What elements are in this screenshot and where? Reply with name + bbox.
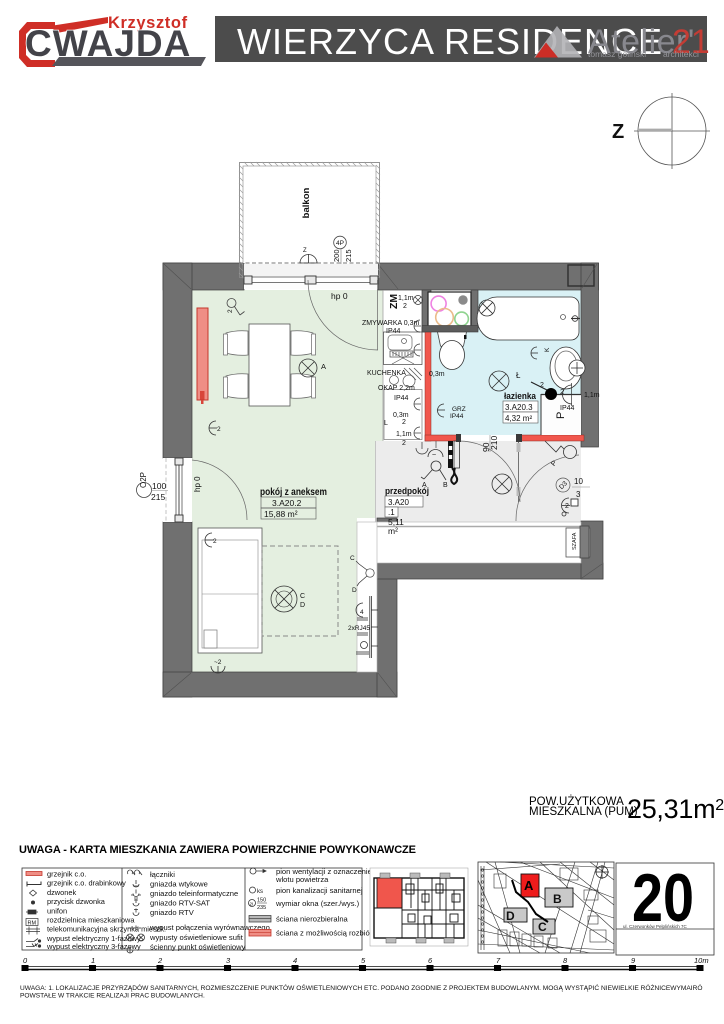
svg-text:hp 0: hp 0 bbox=[331, 291, 348, 301]
svg-text:3.A20: 3.A20 bbox=[388, 498, 409, 507]
svg-text:.1: .1 bbox=[388, 508, 395, 517]
svg-text:grzejnik c.o.: grzejnik c.o. bbox=[47, 870, 86, 879]
svg-text:4: 4 bbox=[293, 956, 297, 965]
svg-text:3: 3 bbox=[576, 490, 581, 499]
svg-text:GRZ: GRZ bbox=[452, 406, 466, 413]
svg-text:3: 3 bbox=[226, 956, 231, 965]
svg-text:telekomunikacyjna skrzynka mie: telekomunikacyjna skrzynka mieszk. bbox=[47, 925, 166, 934]
svg-text:pokój z aneksem: pokój z aneksem bbox=[260, 486, 327, 498]
svg-text:OKAP 2,2m: OKAP 2,2m bbox=[378, 385, 415, 392]
svg-text:unifon: unifon bbox=[47, 906, 67, 915]
svg-text:pion kanalizacji sanitarnej: pion kanalizacji sanitarnej bbox=[276, 886, 363, 895]
svg-text:~2: ~2 bbox=[214, 659, 222, 666]
svg-text:4: 4 bbox=[360, 609, 364, 616]
svg-text:0,3m: 0,3m bbox=[393, 412, 409, 419]
svg-text:C: C bbox=[300, 593, 305, 600]
svg-text:2xRJ45: 2xRJ45 bbox=[348, 625, 370, 632]
svg-text:balkon: balkon bbox=[301, 188, 312, 219]
svg-text:K: K bbox=[544, 347, 551, 352]
svg-text:2: 2 bbox=[403, 303, 407, 310]
svg-text:A: A bbox=[321, 362, 326, 371]
svg-text:2: 2 bbox=[217, 426, 221, 433]
svg-text:gniazda wtykowe: gniazda wtykowe bbox=[150, 880, 208, 889]
svg-text:15,88 m²: 15,88 m² bbox=[264, 509, 298, 519]
svg-text:2: 2 bbox=[560, 387, 564, 396]
svg-text:IP44: IP44 bbox=[450, 413, 464, 420]
svg-text:1,1m: 1,1m bbox=[396, 431, 412, 438]
svg-text:B: B bbox=[553, 892, 562, 906]
svg-text:1,1m: 1,1m bbox=[584, 392, 600, 399]
svg-text:215: 215 bbox=[151, 492, 165, 502]
svg-text:hp 0: hp 0 bbox=[193, 476, 202, 492]
svg-text:grzejnik c.o. drabinkowy: grzejnik c.o. drabinkowy bbox=[47, 879, 126, 888]
svg-text:SZAFA: SZAFA bbox=[572, 532, 578, 550]
svg-text:łączniki: łączniki bbox=[150, 870, 175, 879]
svg-text:L: L bbox=[384, 420, 388, 427]
svg-text:100: 100 bbox=[152, 481, 166, 491]
svg-text:wlotu powietrza: wlotu powietrza bbox=[275, 875, 329, 884]
svg-text:150: 150 bbox=[257, 898, 266, 904]
svg-text:D: D bbox=[352, 587, 357, 594]
svg-text:235: 235 bbox=[257, 905, 266, 911]
svg-text:3.A20.3: 3.A20.3 bbox=[505, 403, 533, 412]
svg-text:wymiar okna (szer./wys.): wymiar okna (szer./wys.) bbox=[275, 899, 360, 908]
svg-text:IP44: IP44 bbox=[386, 328, 401, 335]
svg-text:D: D bbox=[300, 602, 305, 609]
svg-text:1,1m: 1,1m bbox=[398, 295, 414, 302]
svg-text:2: 2 bbox=[402, 419, 406, 426]
svg-text:A: A bbox=[422, 482, 427, 489]
svg-text:2: 2 bbox=[565, 503, 569, 510]
svg-text:4P: 4P bbox=[336, 240, 344, 247]
svg-text:~: ~ bbox=[432, 452, 436, 459]
svg-text:ścienny punkt oświetleniowy: ścienny punkt oświetleniowy bbox=[150, 943, 246, 952]
svg-text:0,3m: 0,3m bbox=[429, 371, 445, 378]
svg-text:ZMYWARKA 0,3m: ZMYWARKA 0,3m bbox=[362, 320, 419, 327]
svg-text:łazienka: łazienka bbox=[504, 391, 537, 401]
svg-text:ściana nierozbieralna: ściana nierozbieralna bbox=[276, 915, 349, 924]
svg-text:215: 215 bbox=[344, 249, 353, 262]
svg-text:KUCHENKA: KUCHENKA bbox=[367, 370, 406, 377]
svg-text:gniazdo RTV: gniazdo RTV bbox=[150, 908, 195, 917]
svg-text:8: 8 bbox=[563, 956, 568, 965]
svg-text:POWSTAŁE W TRAKCIE REALIZAJI P: POWSTAŁE W TRAKCIE REALIZAJI PRAC BUDOWL… bbox=[20, 993, 205, 1000]
svg-text:UWAGA: 1. LOKALIZACJE PRZYRZĄD: UWAGA: 1. LOKALIZACJE PRZYRZĄDÓW SANITAR… bbox=[20, 983, 703, 992]
svg-text:1: 1 bbox=[91, 956, 95, 965]
svg-text:dzwonek: dzwonek bbox=[47, 888, 76, 897]
svg-text:O2P: O2P bbox=[139, 472, 148, 488]
svg-text:C: C bbox=[350, 555, 355, 562]
svg-text:D: D bbox=[506, 909, 515, 923]
svg-text:0: 0 bbox=[23, 956, 28, 965]
svg-text:gniazdo RTV-SAT: gniazdo RTV-SAT bbox=[150, 899, 210, 908]
svg-text:IP44: IP44 bbox=[560, 405, 575, 412]
svg-text:wypusty oświetleniowe sufit: wypusty oświetleniowe sufit bbox=[149, 933, 244, 942]
svg-text:3.A20.2: 3.A20.2 bbox=[272, 498, 302, 508]
svg-text:9: 9 bbox=[631, 956, 636, 965]
svg-text:ściana z możliwością rozbiórki: ściana z możliwością rozbiórki bbox=[276, 929, 378, 938]
svg-text:2: 2 bbox=[157, 956, 163, 965]
svg-text:10: 10 bbox=[574, 477, 583, 486]
svg-text:RM: RM bbox=[28, 921, 37, 927]
svg-text:2: 2 bbox=[227, 309, 234, 313]
svg-text:ks: ks bbox=[257, 889, 263, 895]
svg-text:Ł: Ł bbox=[516, 371, 521, 380]
svg-text:2: 2 bbox=[213, 538, 217, 545]
svg-text:7: 7 bbox=[496, 956, 501, 965]
svg-text:gniazdo teleinformatyczne: gniazdo teleinformatyczne bbox=[150, 889, 238, 898]
svg-text:210: 210 bbox=[489, 436, 499, 450]
svg-text:A: A bbox=[524, 878, 534, 893]
svg-text:ul. Czerwonków Pelplińskich 7C: ul. Czerwonków Pelplińskich 7C bbox=[623, 924, 688, 929]
svg-text:10m: 10m bbox=[694, 956, 709, 965]
svg-text:rozdzielnica mieszkaniowa: rozdzielnica mieszkaniowa bbox=[47, 916, 135, 925]
svg-text:C: C bbox=[538, 920, 547, 934]
svg-text:IP44: IP44 bbox=[394, 395, 409, 402]
svg-text:Z: Z bbox=[303, 248, 307, 254]
svg-text:4,32 m²: 4,32 m² bbox=[505, 414, 532, 423]
svg-text:6: 6 bbox=[428, 956, 433, 965]
svg-text:2: 2 bbox=[402, 440, 406, 447]
svg-text:przycisk dzwonka: przycisk dzwonka bbox=[47, 897, 106, 906]
svg-text:2I: 2I bbox=[250, 902, 254, 907]
svg-text:5: 5 bbox=[361, 956, 366, 965]
svg-text:m²: m² bbox=[388, 526, 398, 536]
svg-text:P: P bbox=[555, 412, 567, 419]
svg-text:B: B bbox=[443, 482, 448, 489]
svg-text:200: 200 bbox=[332, 249, 341, 262]
